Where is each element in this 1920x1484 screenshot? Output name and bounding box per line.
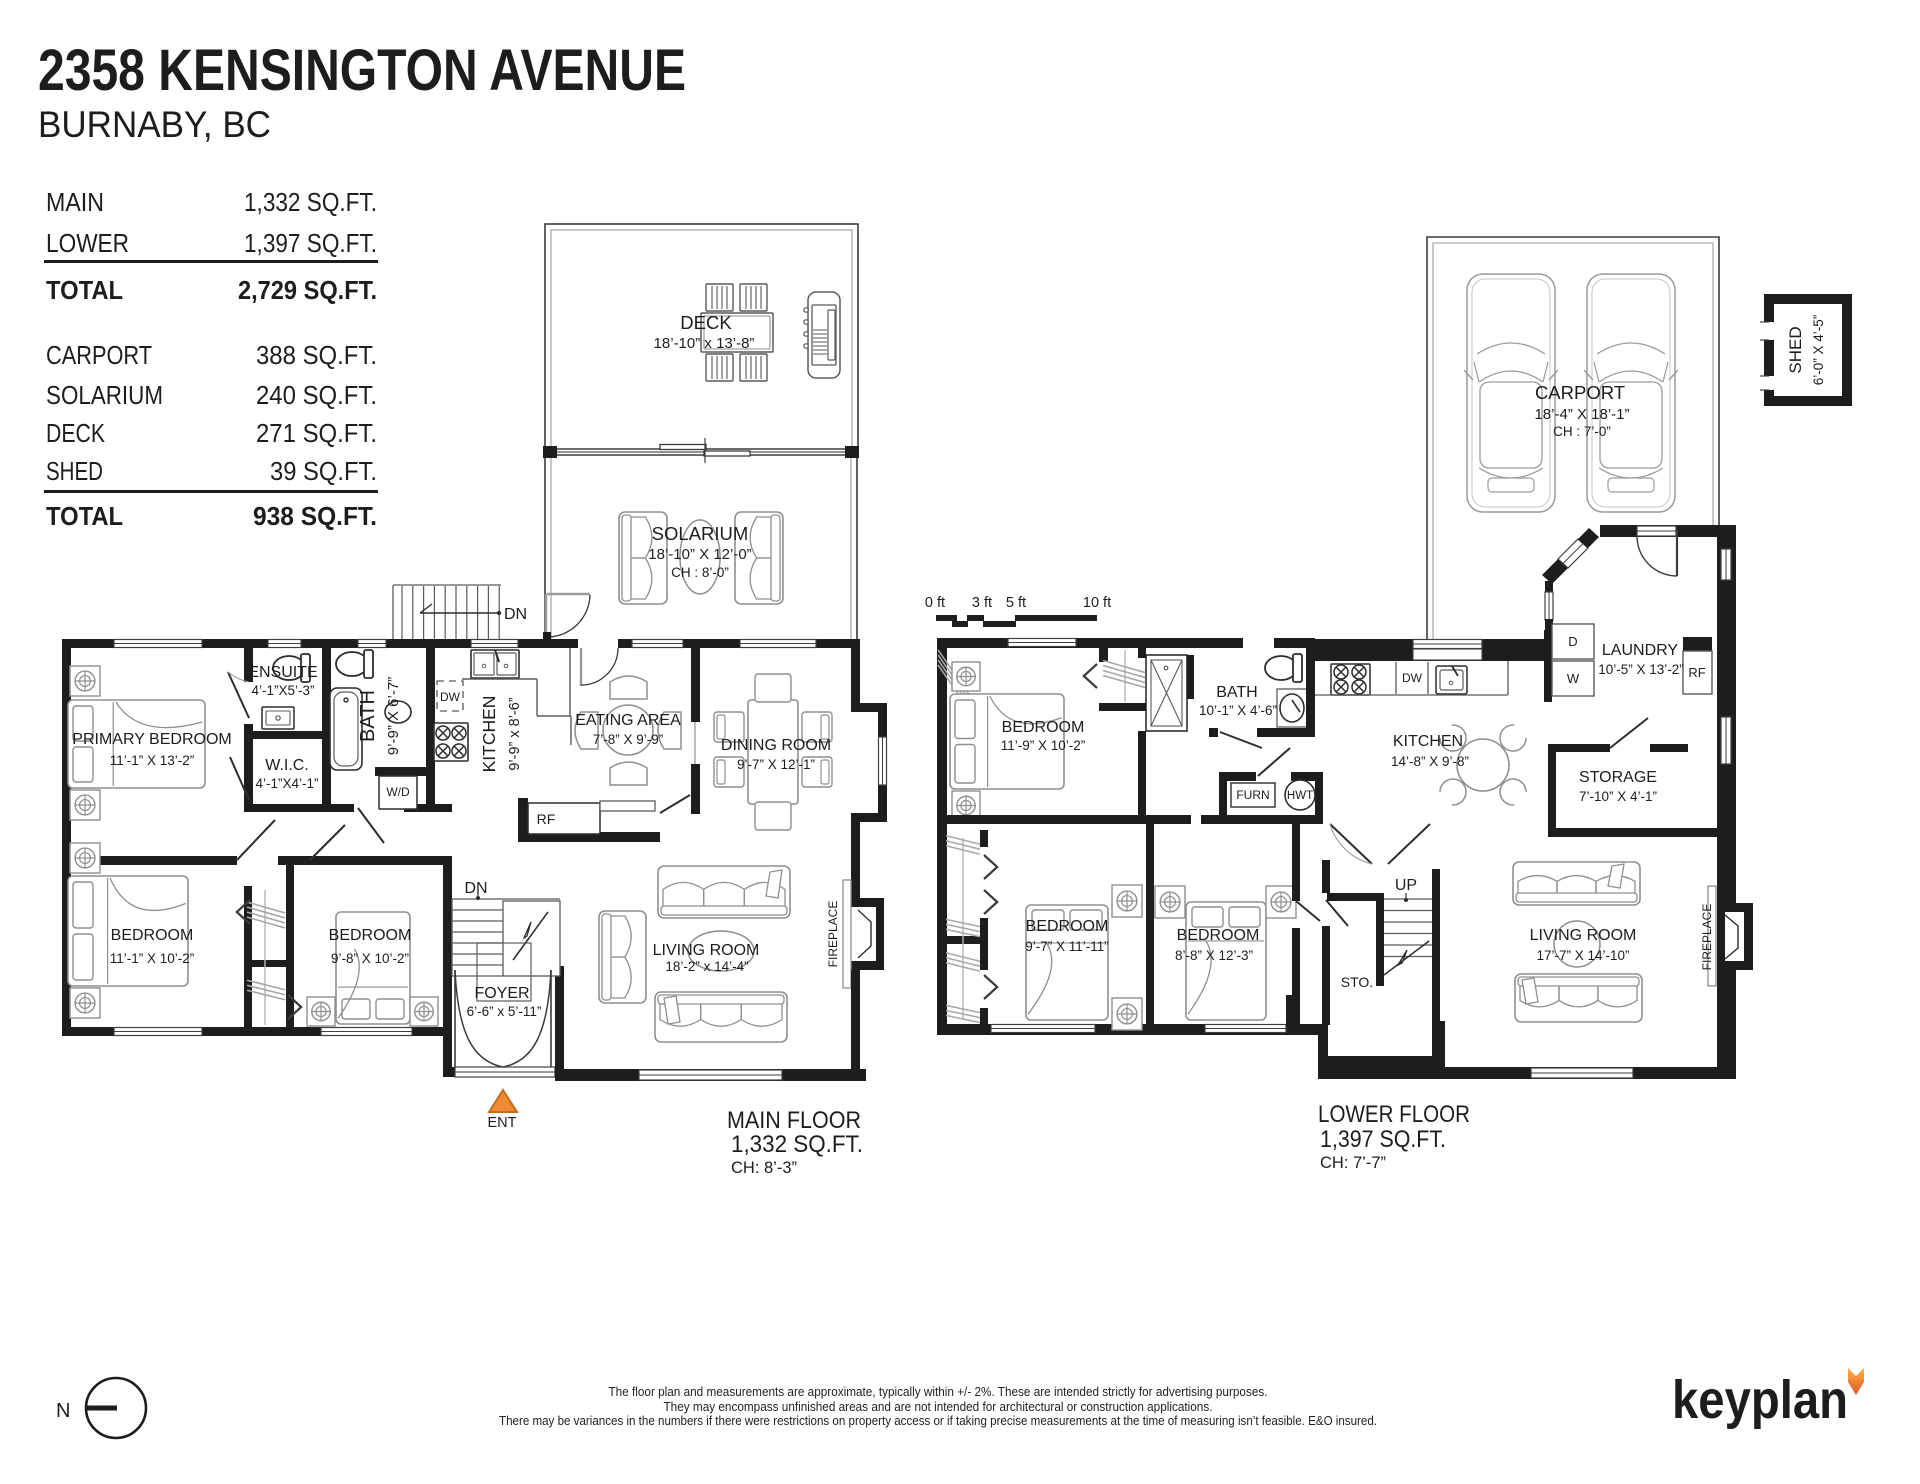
svg-text:BATH: BATH [357, 690, 379, 742]
svg-text:W/D: W/D [386, 785, 410, 799]
svg-text:9’-9” X 6’-7”: 9’-9” X 6’-7” [385, 677, 402, 755]
svg-text:11’-9” X 10’-2”: 11’-9” X 10’-2” [1001, 738, 1086, 753]
svg-text:7’-8” X 9’-9”: 7’-8” X 9’-9” [593, 732, 664, 747]
svg-text:CH: 7’-7”: CH: 7’-7” [1320, 1153, 1386, 1172]
svg-text:KITCHEN: KITCHEN [1393, 733, 1463, 750]
svg-text:39 SQ.FT.: 39 SQ.FT. [270, 456, 377, 486]
svg-text:UP: UP [1395, 877, 1417, 894]
svg-text:9’-9” x 8’-6”: 9’-9” x 8’-6” [507, 697, 523, 770]
svg-text:They may encompass unfinished: They may encompass unfinished areas and … [664, 1400, 1213, 1414]
svg-text:0 ft: 0 ft [925, 595, 945, 611]
svg-text:FOYER: FOYER [474, 985, 529, 1002]
svg-text:14’-8” X 9’-8”: 14’-8” X 9’-8” [1391, 754, 1469, 769]
svg-text:The floor plan and measurement: The floor plan and measurements are appr… [609, 1385, 1268, 1399]
svg-text:FIREPLACE: FIREPLACE [826, 901, 840, 968]
svg-text:271 SQ.FT.: 271 SQ.FT. [256, 418, 377, 448]
svg-text:RF: RF [1688, 665, 1705, 680]
svg-text:EATING AREA: EATING AREA [575, 712, 681, 729]
svg-text:11’-1” X 13’-2”: 11’-1” X 13’-2” [110, 753, 195, 768]
svg-text:BATH: BATH [1216, 684, 1257, 701]
svg-text:17’-7” X 14’-10”: 17’-7” X 14’-10” [1536, 948, 1629, 963]
svg-text:18’-4” X 18’-1”: 18’-4” X 18’-1” [1534, 406, 1629, 423]
svg-text:BEDROOM: BEDROOM [1002, 719, 1085, 736]
svg-text:11’-1” X 10’-2”: 11’-1” X 10’-2” [110, 951, 195, 966]
svg-text:18’-10” X 12’-0”: 18’-10” X 12’-0” [648, 546, 751, 563]
svg-text:BEDROOM: BEDROOM [111, 927, 194, 944]
svg-text:keyplan: keyplan [1672, 1370, 1848, 1430]
svg-text:9’-7” X 11’-11”: 9’-7” X 11’-11” [1025, 939, 1109, 954]
svg-text:RF: RF [537, 811, 556, 827]
svg-text:5 ft: 5 ft [1006, 595, 1026, 611]
svg-text:FURN: FURN [1236, 788, 1269, 802]
svg-text:388 SQ.FT.: 388 SQ.FT. [256, 340, 377, 370]
svg-text:PRIMARY BEDROOM: PRIMARY BEDROOM [72, 731, 231, 748]
svg-text:1,332 SQ.FT.: 1,332 SQ.FT. [244, 187, 377, 217]
svg-text:LOWER: LOWER [46, 228, 129, 258]
svg-text:10 ft: 10 ft [1083, 595, 1111, 611]
svg-text:SOLARIUM: SOLARIUM [652, 523, 749, 544]
svg-text:SOLARIUM: SOLARIUM [46, 380, 163, 410]
svg-text:4’-1”X5’-3”: 4’-1”X5’-3” [251, 683, 314, 698]
svg-text:10’-5” X 13’-2”: 10’-5” X 13’-2” [1598, 662, 1684, 677]
svg-text:ENSUITE: ENSUITE [248, 664, 317, 681]
svg-text:1,397 SQ.FT.: 1,397 SQ.FT. [244, 228, 377, 258]
svg-text:DECK: DECK [46, 418, 106, 448]
svg-text:CARPORT: CARPORT [46, 340, 152, 370]
svg-text:7’-10” X 4’-1”: 7’-10” X 4’-1” [1579, 789, 1657, 804]
svg-text:SHED: SHED [1786, 326, 1805, 373]
svg-text:CH : 8’-0”: CH : 8’-0” [671, 565, 729, 580]
svg-text:LOWER FLOOR: LOWER FLOOR [1318, 1101, 1470, 1128]
svg-text:D: D [1568, 634, 1577, 649]
svg-text:CH : 7’-0”: CH : 7’-0” [1553, 424, 1611, 439]
svg-text:There may be variances in the: There may be variances in the numbers if… [499, 1414, 1377, 1428]
svg-text:LIVING ROOM: LIVING ROOM [653, 942, 760, 959]
svg-text:6’-6” x 5’-11”: 6’-6” x 5’-11” [467, 1004, 542, 1019]
svg-text:3 ft: 3 ft [972, 595, 992, 611]
svg-text:FIREPLACE: FIREPLACE [1700, 904, 1714, 971]
svg-text:TOTAL: TOTAL [46, 275, 123, 305]
svg-text:TOTAL: TOTAL [46, 501, 123, 531]
svg-text:1,332 SQ.FT.: 1,332 SQ.FT. [731, 1131, 863, 1158]
svg-text:2358 KENSINGTON AVENUE: 2358 KENSINGTON AVENUE [38, 38, 686, 103]
svg-text:W: W [1567, 671, 1580, 686]
svg-text:MAIN FLOOR: MAIN FLOOR [727, 1107, 861, 1134]
svg-text:DW: DW [440, 690, 461, 704]
svg-text:10’-1” X 4’-6”: 10’-1” X 4’-6” [1199, 703, 1277, 718]
svg-text:LIVING ROOM: LIVING ROOM [1530, 927, 1637, 944]
svg-text:18’-10” x 13’-8”: 18’-10” x 13’-8” [654, 335, 755, 352]
svg-text:MAIN: MAIN [46, 187, 104, 217]
svg-text:BURNABY, BC: BURNABY, BC [38, 104, 271, 145]
svg-text:BEDROOM: BEDROOM [329, 927, 412, 944]
svg-text:STORAGE: STORAGE [1579, 769, 1657, 786]
svg-text:DECK: DECK [680, 312, 732, 333]
svg-text:938 SQ.FT.: 938 SQ.FT. [253, 501, 377, 531]
svg-text:18’-2” x 14’-4”: 18’-2” x 14’-4” [665, 959, 748, 974]
svg-text:8’-8” X 12’-3”: 8’-8” X 12’-3” [1175, 948, 1253, 963]
svg-text:N: N [56, 1400, 70, 1422]
svg-text:CARPORT: CARPORT [1535, 382, 1625, 403]
svg-text:LAUNDRY: LAUNDRY [1602, 642, 1679, 659]
svg-text:BEDROOM: BEDROOM [1026, 918, 1109, 935]
svg-text:HWT: HWT [1287, 790, 1313, 802]
svg-text:6’-0” X 4’-5”: 6’-0” X 4’-5” [1811, 315, 1826, 386]
svg-text:STO.: STO. [1341, 974, 1373, 990]
svg-text:DN: DN [464, 880, 487, 897]
svg-text:W.I.C.: W.I.C. [265, 757, 309, 774]
svg-text:1,397 SQ.FT.: 1,397 SQ.FT. [1320, 1126, 1446, 1153]
svg-text:KITCHEN: KITCHEN [479, 696, 499, 773]
svg-text:DW: DW [1402, 671, 1423, 685]
svg-text:2,729 SQ.FT.: 2,729 SQ.FT. [238, 275, 377, 305]
svg-text:CH: 8’-3”: CH: 8’-3” [731, 1158, 797, 1177]
svg-text:9’-8” X 10’-2”: 9’-8” X 10’-2” [331, 951, 409, 966]
svg-text:SHED: SHED [46, 456, 103, 486]
svg-text:240 SQ.FT.: 240 SQ.FT. [256, 380, 377, 410]
svg-text:4’-1”X4’-1”: 4’-1”X4’-1” [255, 776, 318, 791]
svg-text:ENT: ENT [488, 1115, 517, 1131]
svg-text:BEDROOM: BEDROOM [1177, 927, 1260, 944]
svg-text:DN: DN [504, 606, 527, 623]
svg-text:DINING ROOM: DINING ROOM [721, 737, 831, 754]
svg-text:9’-7” X 12’-1”: 9’-7” X 12’-1” [737, 757, 815, 772]
